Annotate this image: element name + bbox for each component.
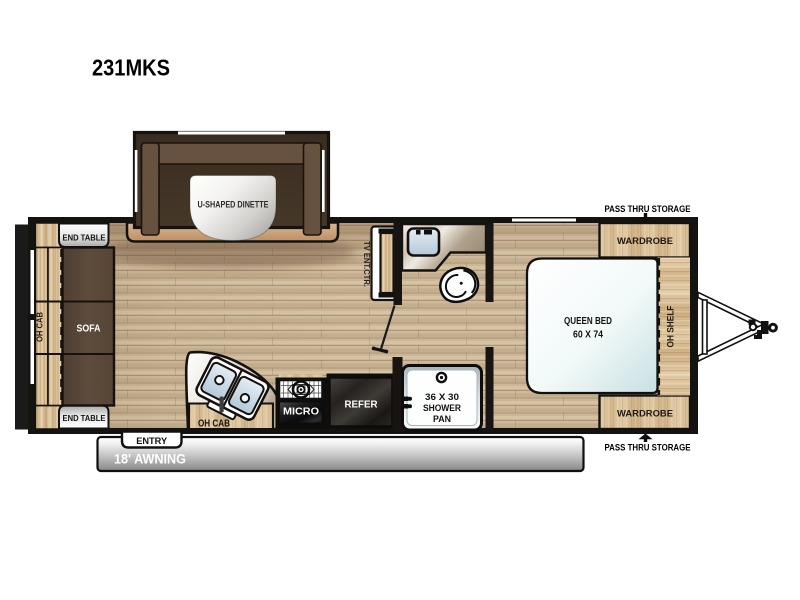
svg-text:MICRO: MICRO (283, 406, 319, 418)
svg-text:REFER: REFER (345, 400, 379, 411)
svg-text:WARDROBE: WARDROBE (617, 409, 673, 420)
svg-text:END TABLE: END TABLE (63, 413, 106, 423)
svg-text:PASS THRU STORAGE: PASS THRU STORAGE (605, 443, 691, 454)
svg-text:WARDROBE: WARDROBE (617, 236, 673, 247)
svg-text:PAN: PAN (433, 414, 451, 424)
svg-text:18' AWNING: 18' AWNING (114, 452, 186, 467)
svg-text:SOFA: SOFA (77, 324, 101, 335)
svg-text:ENTRY: ENTRY (136, 436, 168, 447)
svg-text:OH CAB: OH CAB (34, 312, 44, 342)
svg-text:OH SHELF: OH SHELF (666, 305, 676, 348)
svg-text:36 X 30: 36 X 30 (425, 392, 459, 402)
svg-text:SHOWER: SHOWER (423, 403, 461, 413)
svg-text:END TABLE: END TABLE (63, 233, 106, 243)
svg-text:231MKS: 231MKS (92, 55, 170, 81)
svg-text:60 X 74: 60 X 74 (573, 329, 603, 341)
svg-text:PASS THRU STORAGE: PASS THRU STORAGE (605, 204, 691, 215)
svg-text:TV ENT.CTR.: TV ENT.CTR. (362, 241, 372, 287)
svg-text:U-SHAPED DINETTE: U-SHAPED DINETTE (198, 200, 269, 210)
svg-text:OH CAB: OH CAB (198, 419, 230, 430)
svg-text:QUEEN BED: QUEEN BED (564, 315, 612, 327)
